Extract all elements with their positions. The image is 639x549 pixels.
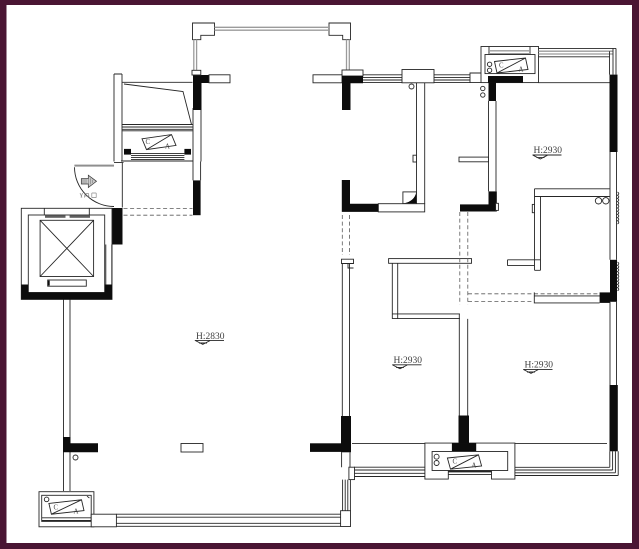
svg-text:C: C bbox=[54, 505, 59, 512]
svg-text:C: C bbox=[499, 63, 504, 70]
svg-text:A: A bbox=[165, 144, 170, 151]
svg-text:C: C bbox=[453, 459, 458, 466]
svg-text:C: C bbox=[146, 139, 151, 146]
svg-text:A: A bbox=[74, 509, 79, 516]
svg-text:A: A bbox=[472, 463, 477, 470]
svg-text:A: A bbox=[519, 67, 524, 74]
